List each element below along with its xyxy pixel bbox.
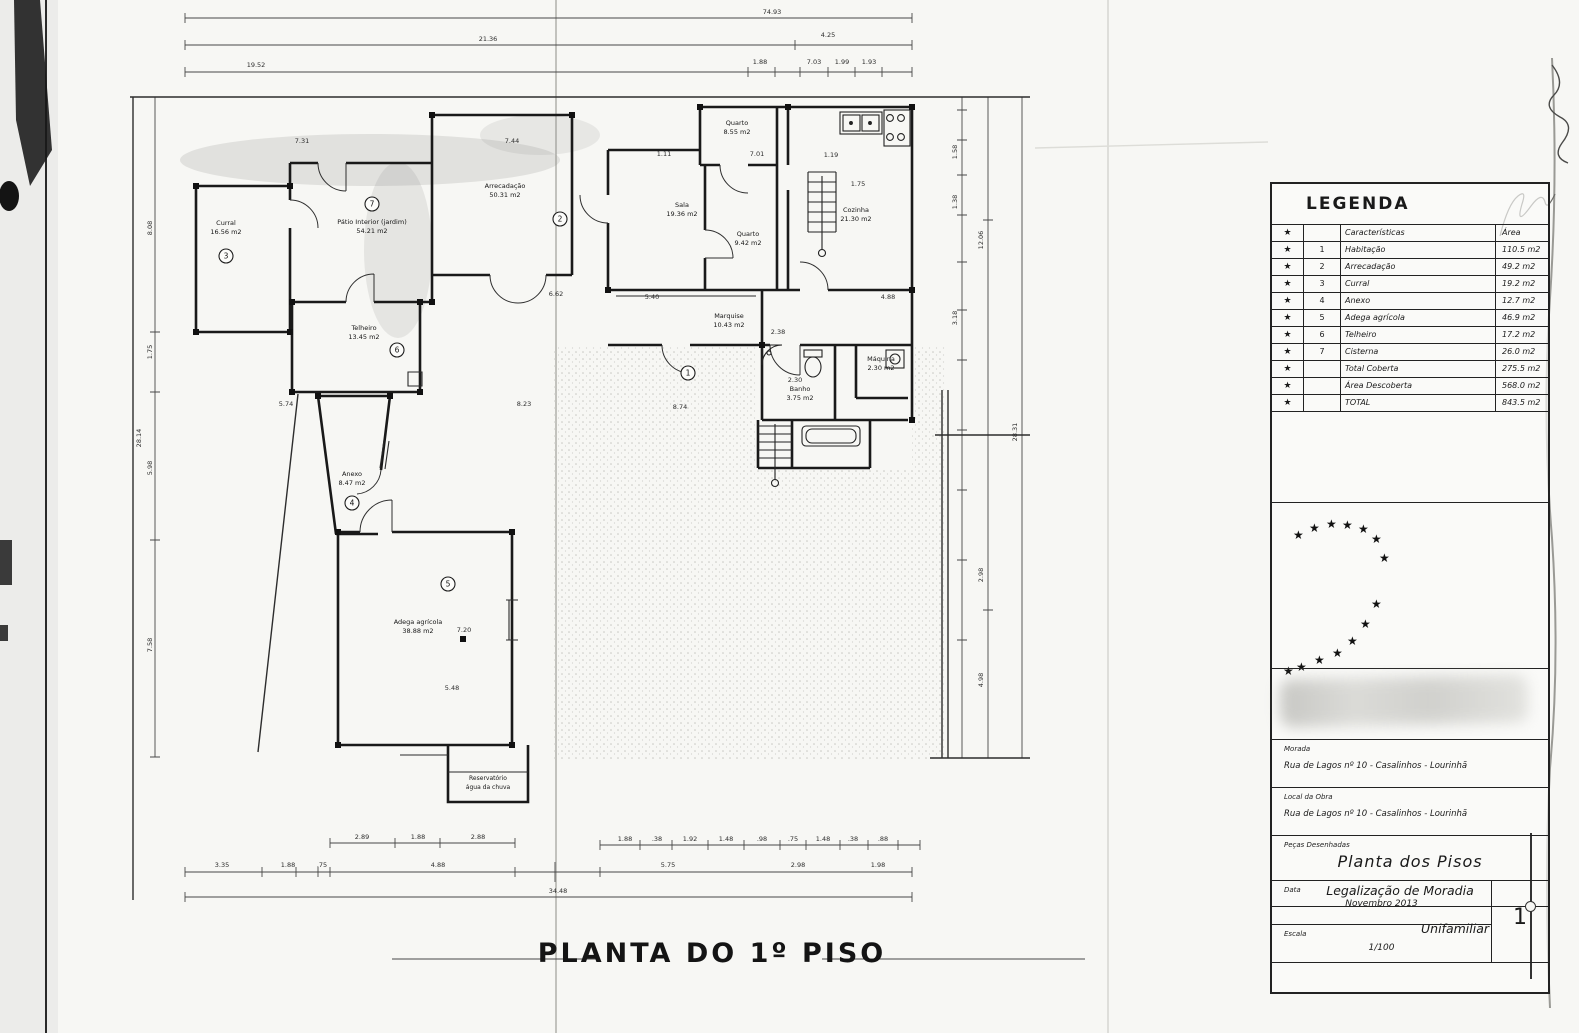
site-location-cell: Local da Obra Rua de Lagos nº 10 - Casal… — [1272, 787, 1548, 835]
address-label: Morada — [1284, 745, 1310, 753]
dimension-top: 1.88 — [753, 58, 767, 66]
reservoir-note-line2: água da chuva — [466, 784, 511, 791]
star-icon: ★ — [1272, 242, 1304, 258]
legend-header-row: ★CaracterísticasÁrea — [1272, 225, 1548, 242]
star-icon: ★ — [1272, 327, 1304, 343]
legend-area: 46.9 m2 — [1496, 310, 1548, 326]
dimension-interior: 5.48 — [445, 684, 459, 692]
dimension-interior: 1.11 — [657, 150, 671, 158]
dimension-top: 19.52 — [247, 61, 266, 69]
legend-lab: Anexo — [1341, 293, 1496, 309]
dimension-bottom: 1.88 — [618, 835, 632, 843]
star-icon: ★ — [1342, 518, 1353, 532]
star-icon: ★ — [1272, 344, 1304, 360]
star-icon: ★ — [1347, 634, 1358, 648]
dimension-right: 4.98 — [977, 673, 985, 687]
dimension-left: 8.08 — [146, 221, 154, 235]
room-label-sala: Sala — [675, 201, 689, 209]
dimension-top: 74.93 — [763, 8, 782, 16]
legend-row: ★7Cisterna26.0 m2 — [1272, 344, 1548, 361]
dimension-left: 7.58 — [146, 638, 154, 652]
legend-row: ★1Habitação110.5 m2 — [1272, 242, 1548, 259]
legend-row: ★4Anexo12.7 m2 — [1272, 293, 1548, 310]
star-icon: ★ — [1272, 310, 1304, 326]
scanned-floor-plan-sheet: Curral16.56 m2Pátio Interior (jardim)54.… — [0, 0, 1579, 1033]
room-area-maquina: 2.30 m2 — [867, 364, 894, 372]
dimension-interior: 1.75 — [851, 180, 865, 188]
date-value: Novembro 2013 — [1272, 899, 1491, 909]
legend-row: ★3Curral19.2 m2 — [1272, 276, 1548, 293]
room-area-sala: 19.36 m2 — [666, 210, 697, 218]
dimension-bottom: 1.48 — [816, 835, 830, 843]
room-label-telheiro: Telheiro — [350, 324, 376, 332]
legend-title: LEGENDA — [1306, 194, 1410, 214]
dimension-interior: 7.20 — [457, 626, 471, 634]
legend-title-row: LEGENDA — [1272, 184, 1548, 225]
legend-num: 2 — [1304, 259, 1341, 275]
dimension-bottom: 1.92 — [683, 835, 697, 843]
room-label-quarto_1: Quarto — [726, 119, 748, 127]
dimension-interior: 7.44 — [505, 137, 519, 145]
sheet-number-cell: 1 — [1492, 880, 1548, 962]
legend-lab: Arrecadação — [1341, 259, 1496, 275]
star-icon: ★ — [1314, 653, 1325, 667]
dimension-right: 3.18 — [951, 311, 959, 325]
star-icon: ★ — [1272, 276, 1304, 292]
legend-num — [1304, 395, 1341, 411]
legend-lab: Características — [1341, 225, 1496, 241]
legend-area: 843.5 m2 — [1496, 395, 1548, 411]
legend-num — [1304, 225, 1341, 241]
site-location-label: Local da Obra — [1284, 793, 1333, 801]
panel-bottom-strip — [1272, 962, 1548, 992]
star-icon: ★ — [1358, 522, 1369, 536]
legend-row: ★5Adega agrícola46.9 m2 — [1272, 310, 1548, 327]
plan-title: PLANTA DO 1º PISO — [538, 938, 887, 969]
room-label-arrecadacao: Arrecadação — [485, 182, 526, 190]
room-area-telheiro: 13.45 m2 — [348, 333, 379, 341]
redacted-name-cell — [1272, 668, 1548, 739]
legend-area: 19.2 m2 — [1496, 276, 1548, 292]
legend-lab: Área Descoberta — [1341, 378, 1496, 394]
dimension-left: 1.75 — [146, 345, 154, 359]
legend-area: 275.5 m2 — [1496, 361, 1548, 377]
room-label-banho: Banho — [790, 385, 811, 393]
dimension-top: 21.36 — [479, 35, 498, 43]
legend-area: 12.7 m2 — [1496, 293, 1548, 309]
star-icon: ★ — [1371, 532, 1382, 546]
legend-row: ★Total Coberta275.5 m2 — [1272, 361, 1548, 378]
reservoir-note-line1: Reservatório — [469, 775, 507, 782]
star-icon: ★ — [1272, 395, 1304, 411]
sink-icon — [840, 112, 882, 134]
address-value: Rua de Lagos nº 10 - Casalinhos - Lourin… — [1284, 761, 1467, 771]
dimension-top: 7.03 — [807, 58, 821, 66]
room-number-arrecadacao: 2 — [558, 215, 563, 224]
star-icon: ★ — [1332, 646, 1343, 660]
legend-lab: TOTAL — [1341, 395, 1496, 411]
dimension-interior: 6.62 — [549, 290, 563, 298]
dimension-bottom: .75 — [788, 835, 798, 843]
dimension-bottom: 1.48 — [719, 835, 733, 843]
legend-num — [1304, 378, 1341, 394]
room-label-quarto_2: Quarto — [737, 230, 759, 238]
drawing-name-value: Planta dos Pisos — [1272, 852, 1548, 871]
room-area-quarto_1: 8.55 m2 — [723, 128, 750, 136]
room-label-cozinha: Cozinha — [843, 206, 869, 214]
scale-label: Escala — [1284, 930, 1306, 938]
room-label-adega: Adega agrícola — [394, 618, 443, 626]
dimension-interior: 5.40 — [645, 293, 659, 301]
legend-area: 17.2 m2 — [1496, 327, 1548, 343]
stove-icon — [884, 110, 910, 146]
dimension-bottom: .88 — [878, 835, 888, 843]
room-number-telheiro: 6 — [395, 346, 400, 355]
date-cell: Data Novembro 2013 — [1272, 880, 1492, 924]
legend-num: 4 — [1304, 293, 1341, 309]
dimension-bottom: 1.98 — [871, 861, 885, 869]
title-block-panel: LEGENDA ★CaracterísticasÁrea★1Habitação1… — [1270, 182, 1550, 994]
dimension-interior: 7.31 — [295, 137, 309, 145]
dimension-interior: 2.38 — [771, 328, 785, 336]
legend-row: ★6Telheiro17.2 m2 — [1272, 327, 1548, 344]
scan-artifact-left-edge — [0, 0, 58, 1033]
dimension-interior: 8.74 — [673, 403, 687, 411]
dimension-bottom: 1.88 — [411, 833, 425, 841]
dimension-right: 1.38 — [951, 195, 959, 209]
dimension-bottom: 4.88 — [431, 861, 445, 869]
star-icon: ★ — [1272, 225, 1304, 241]
legend-area: 26.0 m2 — [1496, 344, 1548, 360]
dimension-bottom: .38 — [652, 835, 662, 843]
dimension-bottom: .38 — [848, 835, 858, 843]
room-area-arrecadacao: 50.31 m2 — [489, 191, 520, 199]
star-icon: ★ — [1272, 293, 1304, 309]
legend-num: 7 — [1304, 344, 1341, 360]
address-cell: Morada Rua de Lagos nº 10 - Casalinhos -… — [1272, 739, 1548, 787]
room-area-patio_interior: 54.21 m2 — [356, 227, 387, 235]
legend-num: 6 — [1304, 327, 1341, 343]
legend-area: 110.5 m2 — [1496, 242, 1548, 258]
dimension-interior: 2.30 — [788, 376, 802, 384]
dimension-interior: 8.23 — [517, 400, 531, 408]
star-icon: ★ — [1326, 517, 1337, 531]
legend-num: 3 — [1304, 276, 1341, 292]
dimension-left: 5.98 — [146, 461, 154, 475]
room-number-adega: 5 — [446, 580, 451, 589]
legend-num: 1 — [1304, 242, 1341, 258]
dimension-right: 2.98 — [977, 568, 985, 582]
room-label-patio_interior: Pátio Interior (jardim) — [337, 218, 406, 226]
legend-lab: Total Coberta — [1341, 361, 1496, 377]
room-area-quarto_2: 9.42 m2 — [734, 239, 761, 247]
legend-lab: Cisterna — [1341, 344, 1496, 360]
dimension-interior: 4.88 — [881, 293, 895, 301]
room-number-patio_exterior: 1 — [686, 369, 691, 378]
dimension-bottom: 2.89 — [355, 833, 369, 841]
room-area-curral: 16.56 m2 — [210, 228, 241, 236]
dimension-top: 4.25 — [821, 31, 835, 39]
legend-row: ★TOTAL843.5 m2 — [1272, 395, 1548, 412]
legend-row: ★2Arrecadação49.2 m2 — [1272, 259, 1548, 276]
star-icon: ★ — [1309, 521, 1320, 535]
dimension-right: 28.31 — [1011, 423, 1019, 442]
star-icon: ★ — [1371, 597, 1382, 611]
dimension-bottom: 3.35 — [215, 861, 229, 869]
date-label: Data — [1284, 886, 1301, 894]
star-icon: ★ — [1293, 528, 1304, 542]
dimension-top: 1.93 — [862, 58, 876, 66]
dimension-interior: 5.74 — [279, 400, 293, 408]
room-label-marquise: Marquise — [714, 312, 744, 320]
legend-section: LEGENDA ★CaracterísticasÁrea★1Habitação1… — [1272, 184, 1548, 502]
dimension-right: 1.58 — [951, 145, 959, 159]
legend-lab: Curral — [1341, 276, 1496, 292]
room-area-marquise: 10.43 m2 — [713, 321, 744, 329]
scale-cell: Escala 1/100 — [1272, 924, 1492, 962]
room-number-patio_interior: 7 — [370, 200, 375, 209]
star-icon: ★ — [1360, 617, 1371, 631]
dimension-bottom: 34.48 — [549, 887, 568, 895]
sheet-number: 1 — [1492, 905, 1548, 930]
dimension-bottom: 1.88 — [281, 861, 295, 869]
star-icon: ★ — [1272, 361, 1304, 377]
dimension-interior: 1.19 — [824, 151, 838, 159]
room-area-adega: 38.88 m2 — [402, 627, 433, 635]
dimension-interior: 7.01 — [750, 150, 764, 158]
legend-area: 49.2 m2 — [1496, 259, 1548, 275]
dimension-right: 12.06 — [977, 231, 985, 250]
legend-area: 568.0 m2 — [1496, 378, 1548, 394]
room-area-banho: 3.75 m2 — [786, 394, 813, 402]
dimension-bottom: .75 — [317, 861, 327, 869]
star-icon: ★ — [1379, 551, 1390, 565]
legend-area: Área — [1496, 225, 1548, 241]
legend-lab: Telheiro — [1341, 327, 1496, 343]
room-label-curral: Curral — [216, 219, 236, 227]
star-icon: ★ — [1272, 259, 1304, 275]
drawing-name-cell: Peças Desenhadas Planta dos Pisos — [1272, 835, 1548, 880]
dimension-left: 28.14 — [135, 429, 143, 448]
room-area-cozinha: 21.30 m2 — [840, 215, 871, 223]
room-label-anexo: Anexo — [342, 470, 362, 478]
scan-smudges — [180, 115, 600, 338]
legend-table: ★CaracterísticasÁrea★1Habitação110.5 m2★… — [1272, 225, 1548, 412]
dimension-top: 1.99 — [835, 58, 849, 66]
room-label-maquina: Máquina — [867, 355, 895, 363]
legend-lab: Habitação — [1341, 242, 1496, 258]
room-area-anexo: 8.47 m2 — [338, 479, 365, 487]
drawing-name-label: Peças Desenhadas — [1284, 841, 1350, 849]
room-number-anexo: 4 — [350, 499, 355, 508]
legend-lab: Adega agrícola — [1341, 310, 1496, 326]
site-location-value: Rua de Lagos nº 10 - Casalinhos - Lourin… — [1284, 809, 1467, 819]
dimension-bottom: 2.88 — [471, 833, 485, 841]
legend-row: ★Área Descoberta568.0 m2 — [1272, 378, 1548, 395]
legend-num — [1304, 361, 1341, 377]
legend-num: 5 — [1304, 310, 1341, 326]
star-icon: ★ — [1272, 378, 1304, 394]
redacted-name-blur — [1280, 674, 1529, 727]
dimension-bottom: 2.98 — [791, 861, 805, 869]
scale-value: 1/100 — [1272, 943, 1491, 953]
dimension-bottom: 5.75 — [661, 861, 675, 869]
room-number-curral: 3 — [224, 252, 229, 261]
dimension-bottom: .98 — [757, 835, 767, 843]
stamp-section: ★★★★★★★★★★★★★★ Legalização de Moradia Un… — [1272, 502, 1548, 668]
